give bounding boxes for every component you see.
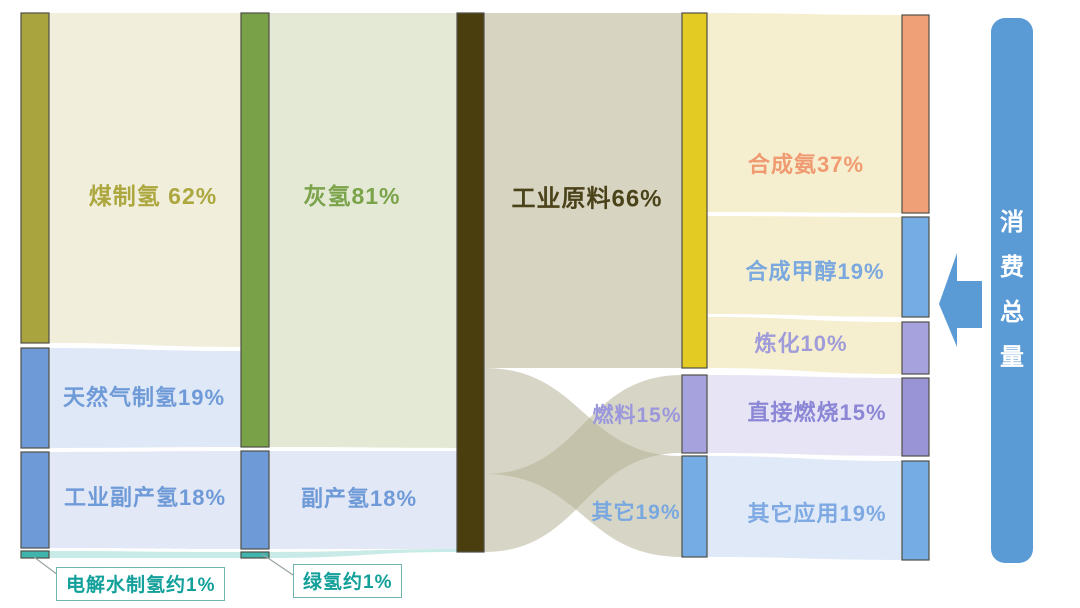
node-byproduct-hydrogen	[241, 451, 269, 549]
flow-industrial-to-ammonia	[707, 13, 902, 213]
node-natural-gas	[21, 348, 49, 448]
node-other-applications	[902, 461, 929, 560]
node-grey-hydrogen	[241, 13, 269, 447]
sankey-svg	[0, 0, 1080, 608]
callout-electrolysis: 电解水制氢约1%	[56, 567, 225, 601]
callout-green-hydrogen: 绿氢约1%	[293, 564, 402, 598]
label-industrial-byproduct: 工业副产氢18%	[64, 480, 226, 512]
label-coal: 煤制氢 62%	[89, 177, 217, 211]
label-natural-gas: 天然气制氢19%	[63, 380, 225, 412]
label-refining: 炼化10%	[754, 326, 847, 358]
sankey-hydrogen-flow-chart: 煤制氢 62% 灰氢81% 工业原料66% 天然气制氢19% 工业副产氢18% …	[0, 0, 1080, 608]
flow-grey-to-total	[269, 13, 457, 448]
node-electrolysis	[21, 551, 49, 558]
label-byproduct-hydrogen: 副产氢18%	[301, 481, 417, 513]
node-other	[682, 456, 707, 557]
label-ammonia: 合成氨37%	[748, 147, 864, 179]
label-industrial-feedstock: 工业原料66%	[511, 179, 662, 214]
label-other: 其它19%	[591, 496, 680, 526]
node-green-hydrogen	[241, 552, 269, 558]
node-industrial-byproduct	[21, 452, 49, 548]
left-arrow-icon	[939, 253, 982, 347]
flow-electrolysis-to-green	[49, 551, 241, 558]
label-fuel: 燃料15%	[592, 399, 681, 429]
flow-green-to-total	[269, 549, 457, 558]
node-methanol	[902, 217, 929, 317]
label-total-consumption: 消费总量	[998, 200, 1026, 380]
node-industrial-feedstock	[682, 13, 707, 368]
label-direct-combustion: 直接燃烧15%	[747, 395, 886, 427]
node-coal	[21, 13, 49, 343]
label-methanol: 合成甲醇19%	[745, 254, 884, 286]
node-refining	[902, 322, 929, 374]
node-fuel	[682, 375, 707, 453]
label-other-applications: 其它应用19%	[747, 496, 886, 528]
label-grey-hydrogen: 灰氢81%	[303, 177, 400, 211]
node-hydrogen-total	[457, 13, 484, 552]
node-direct-combustion	[902, 378, 929, 456]
node-ammonia	[902, 15, 929, 213]
